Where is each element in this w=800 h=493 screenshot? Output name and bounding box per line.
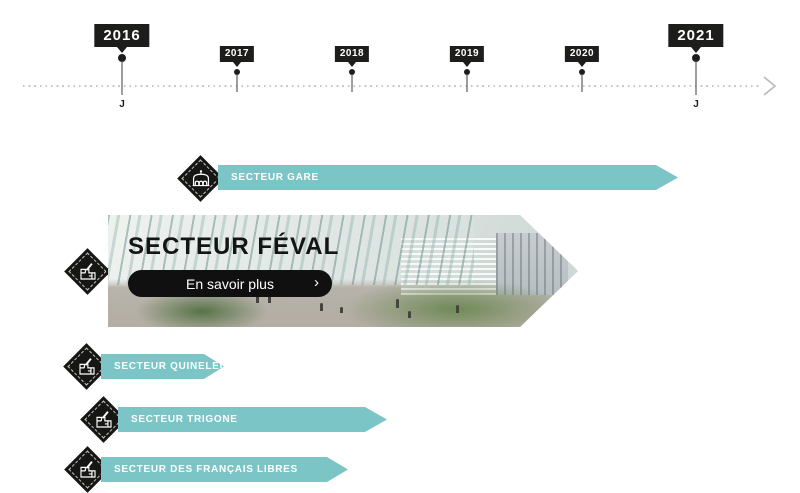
sector-bar-francais-libres[interactable]: SECTEUR DES FRANÇAIS LIBRES <box>101 457 348 482</box>
year-tick-line <box>696 60 697 95</box>
map-plan-icon <box>77 459 98 480</box>
pedestrian-silhouette <box>340 307 343 313</box>
sector-label: SECTEUR GARE <box>218 165 678 190</box>
year-tick-line <box>122 60 123 95</box>
year-label-pointer <box>691 47 701 53</box>
sector-bar-trigone[interactable]: SECTEUR TRIGONE <box>118 407 387 432</box>
learn-more-button[interactable]: En savoir plus › <box>128 270 332 297</box>
sector-label: SECTEUR QUINELEU <box>101 354 224 379</box>
pedestrian-silhouette <box>396 299 399 308</box>
sector-diamond-marker[interactable] <box>184 162 217 195</box>
year-label[interactable]: 2016 <box>94 24 149 47</box>
year-label-pointer <box>463 62 471 67</box>
pedestrian-silhouette <box>320 303 323 311</box>
year-label[interactable]: 2017 <box>220 46 254 62</box>
chevron-right-icon: › <box>314 270 319 296</box>
year-label-pointer <box>348 62 356 67</box>
sector-diamond-marker[interactable] <box>71 453 104 486</box>
project-timeline-page: 2016 J 2017 2018 2019 2020 <box>0 0 800 493</box>
year-label-pointer <box>117 47 127 53</box>
sector-label: SECTEUR DES FRANÇAIS LIBRES <box>101 457 348 482</box>
pedestrian-silhouette <box>456 305 459 313</box>
timeline-axis <box>23 85 761 87</box>
month-marker: J <box>119 99 125 110</box>
sector-bar-quineleu[interactable]: SECTEUR QUINELEU <box>101 354 224 379</box>
year-tick-line <box>237 74 238 92</box>
year-tick-line <box>582 74 583 92</box>
year-label[interactable]: 2019 <box>450 46 484 62</box>
sector-diamond-marker[interactable] <box>87 403 120 436</box>
sector-diamond-marker[interactable] <box>71 255 104 288</box>
map-plan-icon <box>76 356 97 377</box>
map-plan-icon <box>93 409 114 430</box>
year-label-pointer <box>233 62 241 67</box>
month-marker: J <box>693 99 699 110</box>
station-icon <box>190 168 211 189</box>
sector-card-feval[interactable]: SECTEUR FÉVAL En savoir plus › <box>108 215 578 327</box>
sector-label: SECTEUR TRIGONE <box>118 407 387 432</box>
sector-bar-gare[interactable]: SECTEUR GARE <box>218 165 678 190</box>
chevron-right-icon <box>762 75 778 97</box>
year-label[interactable]: 2020 <box>565 46 599 62</box>
learn-more-label: En savoir plus <box>186 276 274 292</box>
year-tick-line <box>352 74 353 92</box>
year-label[interactable]: 2021 <box>668 24 723 47</box>
year-tick-line <box>467 74 468 92</box>
year-label-pointer <box>578 62 586 67</box>
map-plan-icon <box>77 261 98 282</box>
pedestrian-silhouette <box>408 311 411 318</box>
sector-diamond-marker[interactable] <box>70 350 103 383</box>
year-label[interactable]: 2018 <box>335 46 369 62</box>
sector-title: SECTEUR FÉVAL <box>128 233 332 261</box>
